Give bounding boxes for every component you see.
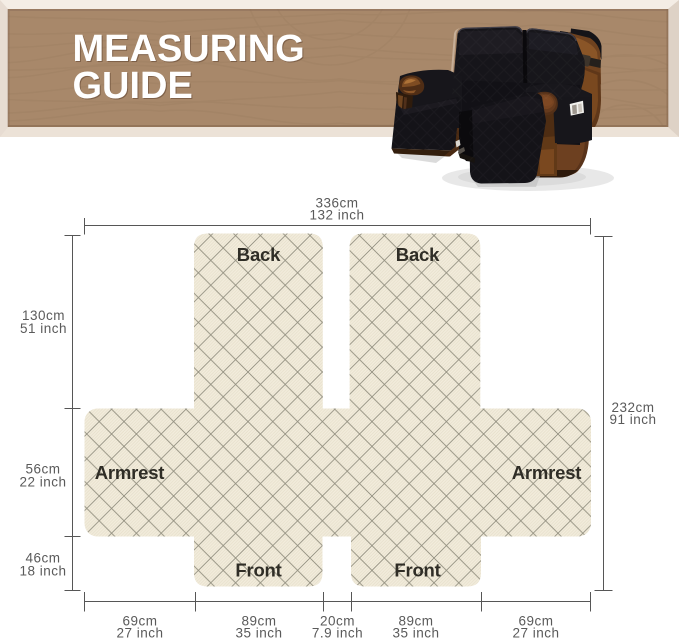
svg-text:Back: Back bbox=[237, 244, 281, 265]
svg-text:Armrest: Armrest bbox=[512, 462, 582, 483]
svg-text:132 inch: 132 inch bbox=[309, 208, 364, 223]
svg-text:35 inch: 35 inch bbox=[235, 626, 282, 640]
svg-text:51 inch: 51 inch bbox=[20, 321, 67, 336]
svg-text:Back: Back bbox=[396, 244, 440, 265]
svg-text:91 inch: 91 inch bbox=[609, 412, 656, 427]
svg-text:Armrest: Armrest bbox=[95, 462, 165, 483]
svg-text:7.9 inch: 7.9 inch bbox=[312, 626, 363, 640]
svg-text:35 inch: 35 inch bbox=[392, 626, 439, 640]
svg-text:27 inch: 27 inch bbox=[512, 626, 559, 640]
svg-text:Front: Front bbox=[235, 560, 281, 581]
svg-text:18 inch: 18 inch bbox=[19, 564, 66, 579]
svg-text:27 inch: 27 inch bbox=[116, 626, 163, 640]
svg-text:Front: Front bbox=[394, 560, 440, 581]
svg-text:22 inch: 22 inch bbox=[19, 475, 66, 490]
